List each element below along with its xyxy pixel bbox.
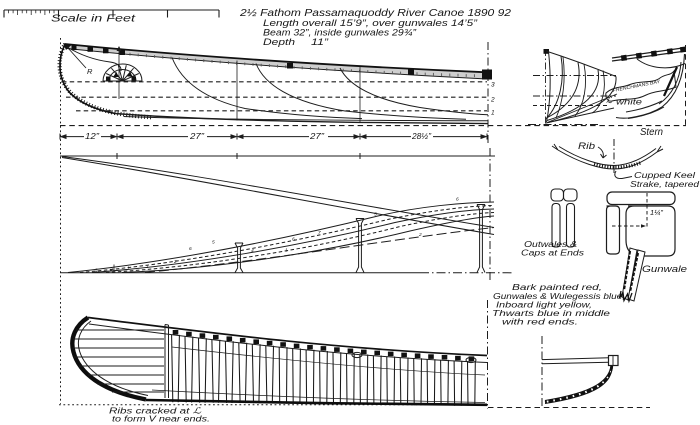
svg-text:28½”: 28½”	[411, 132, 431, 141]
svg-text:2: 2	[490, 97, 495, 104]
svg-text:27”: 27”	[309, 132, 325, 141]
svg-text:Caps at Ends: Caps at Ends	[521, 248, 584, 258]
svg-text:2: 2	[109, 267, 113, 272]
svg-text:11”: 11”	[311, 37, 329, 47]
svg-text:3: 3	[491, 82, 495, 89]
svg-text:2: 2	[173, 259, 177, 265]
svg-text:27”: 27”	[189, 132, 205, 141]
svg-text:Beam 32”, inside gunwales 2: Beam 32”, inside gunwales 29¾”	[263, 28, 417, 38]
svg-text:Strake, tapered: Strake, tapered	[630, 179, 699, 189]
svg-text:6: 6	[292, 237, 295, 243]
svg-text:Rib: Rib	[578, 141, 595, 151]
svg-text:6: 6	[456, 197, 459, 203]
svg-text:R: R	[87, 67, 93, 76]
svg-text:6: 6	[189, 246, 192, 252]
svg-text:Scale in Feet: Scale in Feet	[51, 14, 137, 25]
svg-text:ℒ: ℒ	[606, 95, 613, 105]
svg-text:white: white	[616, 97, 642, 107]
svg-text:1: 1	[491, 110, 495, 117]
svg-text:5: 5	[212, 240, 215, 246]
svg-text:with red ends.: with red ends.	[502, 317, 578, 327]
svg-text:Length overall 15’9”, over gu: Length overall 15’9”, over gunwales 14’5…	[263, 18, 478, 28]
svg-text:1: 1	[285, 248, 288, 254]
svg-text:Stern: Stern	[640, 127, 663, 138]
svg-text:5: 5	[374, 212, 377, 218]
svg-text:1¼”: 1¼”	[650, 208, 663, 217]
svg-text:4: 4	[251, 248, 254, 254]
svg-text:Gunwale: Gunwale	[642, 264, 687, 275]
svg-text:7: 7	[318, 230, 321, 236]
svg-text:12”: 12”	[85, 132, 99, 141]
svg-text:Depth: Depth	[263, 37, 295, 47]
svg-text:2: 2	[418, 232, 422, 238]
svg-text:to form V near ends.: to form V near ends.	[112, 414, 210, 424]
